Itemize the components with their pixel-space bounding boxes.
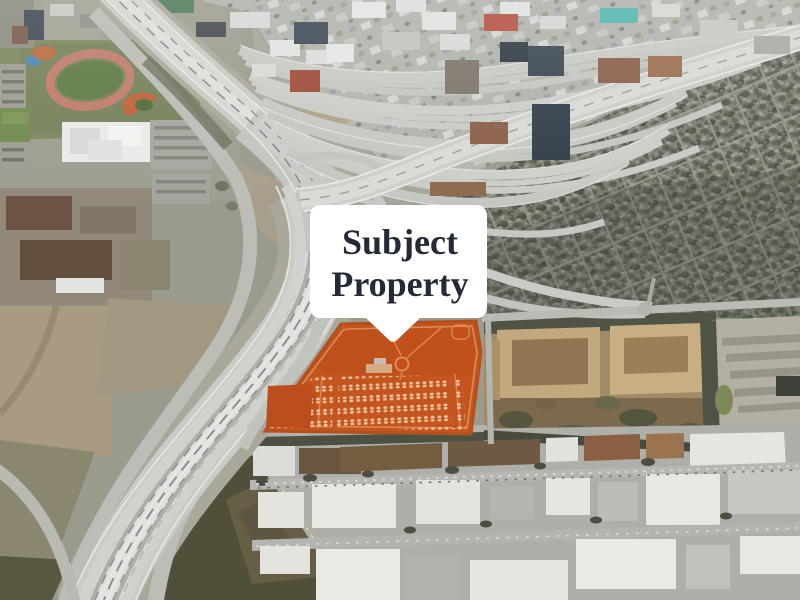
svg-text:Property: Property — [331, 264, 468, 304]
svg-text:Subject: Subject — [342, 222, 458, 262]
